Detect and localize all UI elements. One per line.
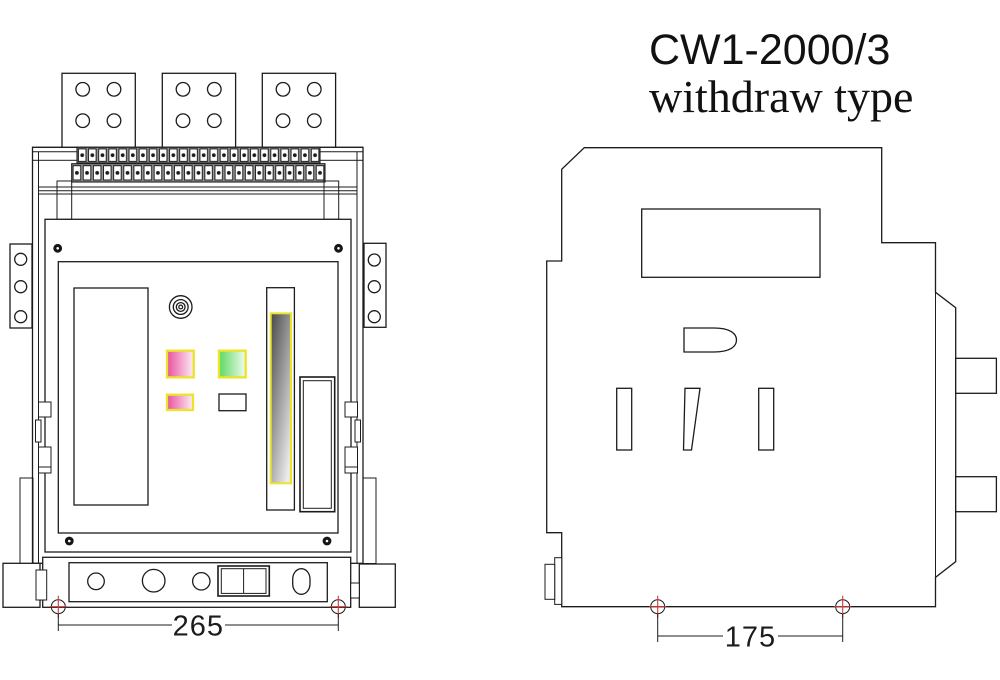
busbar-plate-2 [162,73,235,147]
drawer-rail [36,557,359,607]
indicator-green [219,351,246,378]
indicator-pink-small [167,395,193,410]
outer-column-right [363,478,376,564]
drawing-canvas: 265 17 [0,0,1000,680]
panel-screw [323,537,332,546]
foot-left [3,563,40,607]
terminal-stub-lower [956,477,997,512]
panel-screw [334,244,343,253]
terminal-stub-upper [956,358,997,393]
terminal-strip-bottom-row [72,164,325,182]
front-dimension-label: 265 [173,611,224,643]
indicator-window-blank [219,394,246,411]
guide-stub [545,558,562,605]
panel-screw [65,537,74,546]
busbar-plate-3 [262,73,335,147]
side-dimension-label: 175 [725,622,776,654]
rail-step-right [351,583,360,598]
outer-panel [45,219,351,552]
indicator-pink-large [167,351,194,378]
side-view: 175 [545,148,996,654]
terminal-strip-top-row [77,147,320,163]
technical-drawing-page: 265 17 [0,0,1000,680]
drawing-title: CW1-2000/3 withdraw type [649,26,913,122]
title-model-number: CW1-2000/3 [649,26,890,74]
side-outline [547,148,956,607]
mounting-bracket-left [10,244,32,328]
handle-slot-insert [271,313,291,483]
rail-step-left [36,570,47,600]
title-type: withdraw type [649,71,913,122]
panel-screw [53,244,62,253]
mounting-bracket-right [364,243,386,327]
front-view: 265 [3,73,395,642]
busbar-plate-1 [62,73,135,147]
handle-slot [267,288,295,510]
foot-right [359,564,395,607]
outer-column-left [20,478,33,564]
